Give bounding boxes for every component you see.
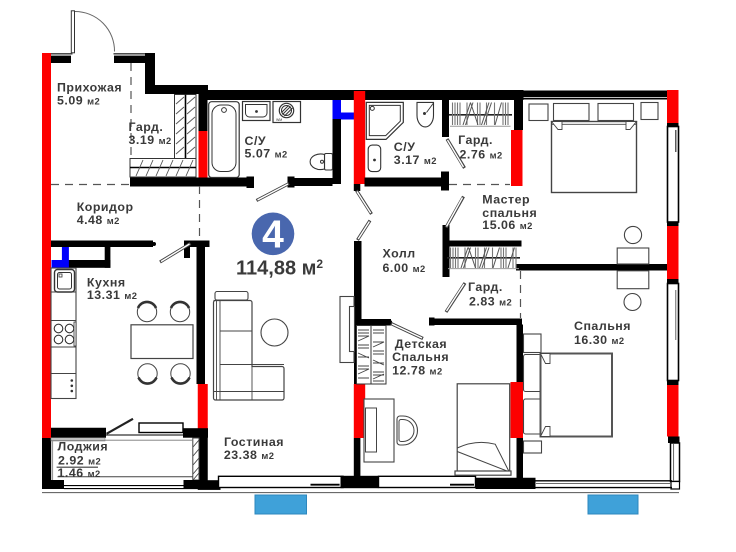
svg-text:6.00 м2: 6.00 м2 [383, 261, 426, 275]
svg-text:5.07 м2: 5.07 м2 [245, 147, 288, 161]
svg-text:С/У: С/У [245, 134, 267, 148]
svg-text:Лоджия: Лоджия [58, 440, 109, 454]
svg-text:3.17 м2: 3.17 м2 [394, 153, 437, 167]
svg-text:Гард.: Гард. [468, 280, 503, 294]
svg-text:16.30 м2: 16.30 м2 [574, 333, 625, 347]
svg-text:Спальня: Спальня [574, 319, 631, 333]
svg-text:2.83 м2: 2.83 м2 [469, 295, 512, 309]
svg-text:3.19 м2: 3.19 м2 [129, 133, 172, 147]
svg-text:Прихожая: Прихожая [57, 81, 122, 95]
svg-text:1.46 м2: 1.46 м2 [58, 466, 101, 480]
svg-text:4.48 м2: 4.48 м2 [77, 213, 120, 227]
svg-text:2.76 м2: 2.76 м2 [460, 148, 503, 162]
svg-text:Гостиная: Гостиная [224, 435, 284, 449]
svg-text:WM: WM [276, 118, 282, 122]
svg-text:114,88 м2: 114,88 м2 [236, 257, 323, 280]
svg-text:Холл: Холл [383, 247, 416, 261]
svg-text:Гард.: Гард. [129, 120, 164, 134]
svg-text:5.09 м2: 5.09 м2 [57, 94, 100, 108]
svg-text:Мастер: Мастер [482, 193, 530, 207]
svg-text:4: 4 [262, 214, 284, 257]
svg-text:Детская: Детская [395, 337, 447, 351]
svg-text:13.31 м2: 13.31 м2 [87, 288, 138, 302]
svg-text:12.78 м2: 12.78 м2 [392, 364, 443, 378]
svg-text:Спальня: Спальня [392, 350, 449, 364]
svg-text:15.06 м2: 15.06 м2 [482, 218, 533, 232]
svg-text:23.38 м2: 23.38 м2 [224, 448, 275, 462]
svg-text:Гард.: Гард. [458, 133, 493, 147]
